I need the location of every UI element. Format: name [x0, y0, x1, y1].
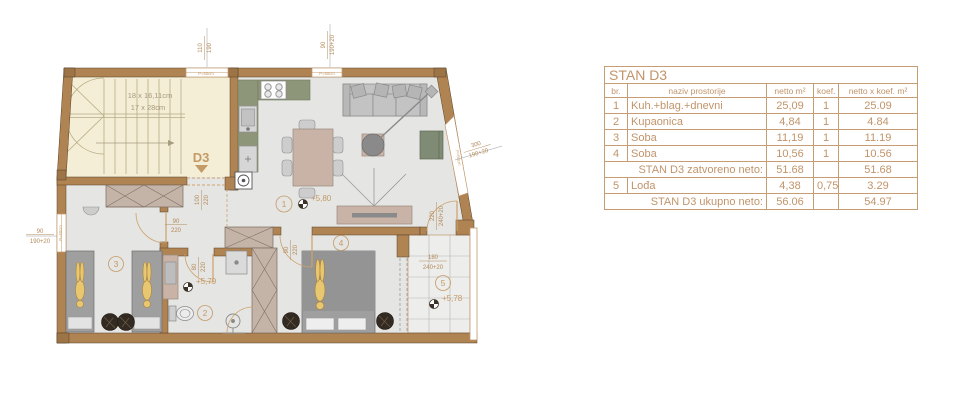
svg-text:220: 220: [201, 261, 207, 272]
col-header-netto: netto m²: [767, 84, 814, 98]
room-number: 1: [282, 199, 287, 209]
grand-total-netto: 56.06: [767, 194, 814, 210]
room-number: 4: [339, 238, 344, 248]
cell-netto: 25,09: [767, 98, 814, 114]
svg-text:220: 220: [204, 194, 210, 205]
floorplan-page: 18 x 16,11cm 17 x 28cm P=50cm P=50cm: [0, 0, 960, 413]
armchair: [420, 131, 443, 159]
dim-top1: 110 190: [198, 36, 213, 60]
cell-br: 3: [605, 130, 628, 146]
svg-text:190+20: 190+20: [330, 34, 336, 55]
subtotal-koef-empty: [814, 162, 839, 178]
cell-total: 3.29: [839, 178, 918, 194]
grand-total-koef-empty: [814, 194, 839, 210]
unit-label: D3: [193, 150, 210, 165]
tv-screen: [352, 213, 397, 218]
svg-text:90: 90: [173, 219, 180, 225]
cell-br: 2: [605, 114, 628, 130]
benchmark-icon: [430, 300, 439, 309]
dim-top2: 90 190+20: [321, 31, 336, 59]
svg-text:300: 300: [470, 141, 482, 150]
stove-icon: [261, 81, 286, 99]
grand-total-total: 54.97: [839, 194, 918, 210]
svg-text:240+20: 240+20: [423, 265, 444, 271]
dishwasher-icon: [239, 146, 257, 172]
table-row: 1 Kuh.+blag.+dnevni 25,09 1 25.09: [605, 98, 918, 114]
svg-text:90: 90: [321, 41, 327, 48]
dining-table: [293, 129, 333, 186]
stair-dimension-note2: 17 x 28cm: [131, 103, 166, 112]
table-subtotal-row: STAN D3 zatvoreno neto: 51.68 51.68: [605, 162, 918, 178]
table-row: 2 Kupaonica 4,84 1 4.84: [605, 114, 918, 130]
cell-koef: 1: [814, 146, 839, 162]
parapet-label: P=50cm: [58, 225, 63, 241]
cell-name: Kupaonica: [628, 114, 767, 130]
floorplan-drawing: 18 x 16,11cm 17 x 28cm P=50cm P=50cm: [0, 0, 540, 413]
subtotal-label: STAN D3 zatvoreno neto:: [605, 162, 767, 178]
col-header-br: br.: [605, 84, 628, 98]
dim-slant: 300 190+20: [462, 138, 493, 161]
subtotal-netto: 51.68: [767, 162, 814, 178]
cell-name: Soba: [628, 146, 767, 162]
table-row: 4 Soba 10,56 1 10.56: [605, 146, 918, 162]
table-header-row: br. naziv prostorije netto m² koef. nett…: [605, 84, 918, 98]
subtotal-total: 51.68: [839, 162, 918, 178]
loggia-parapet: [470, 228, 477, 340]
cell-netto: 10,56: [767, 146, 814, 162]
svg-text:190+20: 190+20: [30, 239, 51, 245]
cell-total: 11.19: [839, 130, 918, 146]
level-label: +5,78: [442, 294, 463, 303]
cell-koef: 1: [814, 130, 839, 146]
cell-koef: 0,75: [814, 178, 839, 194]
sofa: [343, 83, 427, 116]
svg-text:80: 80: [192, 263, 198, 270]
cell-netto: 4,84: [767, 114, 814, 130]
svg-text:220: 220: [171, 228, 182, 234]
svg-text:90: 90: [37, 229, 44, 235]
cell-koef: 1: [814, 98, 839, 114]
benchmark-icon: [184, 283, 193, 292]
table-title: STAN D3: [605, 67, 918, 84]
svg-text:180: 180: [428, 255, 439, 261]
svg-text:220: 220: [430, 210, 436, 221]
cell-name: Kuh.+blag.+dnevni: [628, 98, 767, 114]
table-row: 3 Soba 11,19 1 11.19: [605, 130, 918, 146]
table-row: 5 Lođa 4,38 0,75 3.29: [605, 178, 918, 194]
cell-netto: 11,19: [767, 130, 814, 146]
toilet-icon: [169, 306, 194, 321]
room-number: 3: [114, 259, 119, 269]
kitchen-sink-icon: [239, 106, 257, 132]
grand-total-label: STAN D3 ukupno neto:: [605, 194, 767, 210]
cell-koef: 1: [814, 114, 839, 130]
level-label: +5,80: [311, 194, 332, 203]
parapet-label: P=50cm: [198, 71, 214, 76]
cell-total: 4.84: [839, 114, 918, 130]
room-number: 2: [203, 308, 208, 318]
area-table: STAN D3 br. naziv prostorije netto m² ko…: [604, 66, 917, 210]
washing-machine-icon: [235, 172, 252, 189]
level-label: +5,79: [196, 277, 217, 286]
cell-name: Soba: [628, 130, 767, 146]
svg-text:100: 100: [195, 194, 201, 205]
cell-total: 10.56: [839, 146, 918, 162]
table-grand-total-row: STAN D3 ukupno neto: 56.06 54.97: [605, 194, 918, 210]
svg-text:190: 190: [207, 42, 213, 53]
col-header-koef: koef.: [814, 84, 839, 98]
svg-text:240+20: 240+20: [439, 205, 445, 226]
cell-br: 5: [605, 178, 628, 194]
dim-left: 90 190+20: [26, 229, 54, 245]
col-header-total: netto x koef. m²: [839, 84, 918, 98]
col-header-name: naziv prostorije: [628, 84, 767, 98]
room-number: 5: [441, 278, 446, 288]
svg-text:110: 110: [198, 43, 204, 53]
parapet-label: P=50cm: [319, 71, 335, 76]
benchmark-icon: [299, 200, 308, 209]
cell-total: 25.09: [839, 98, 918, 114]
stair-dimension-note: 18 x 16,11cm: [128, 91, 172, 100]
svg-text:90: 90: [284, 246, 290, 253]
cell-netto: 4,38: [767, 178, 814, 194]
cell-br: 4: [605, 146, 628, 162]
svg-text:220: 220: [293, 244, 299, 255]
cell-br: 1: [605, 98, 628, 114]
cell-name: Lođa: [628, 178, 767, 194]
